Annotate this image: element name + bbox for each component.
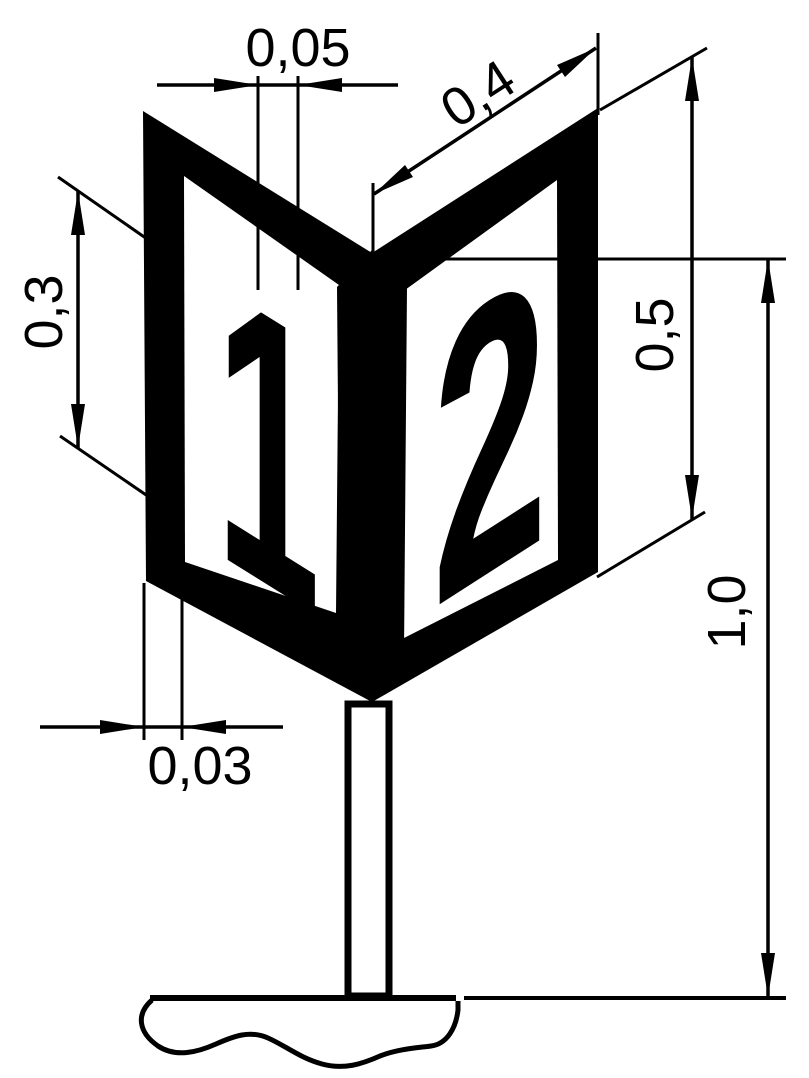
arrowhead [685,57,699,101]
dim-label-1-0: 1,0 [697,574,757,649]
dim-0-5: 0,5 [597,48,707,577]
technical-drawing: 1 2 0,05 0,4 0,3 0,5 [0,0,809,1078]
arrowhead [71,404,85,448]
arrowhead [100,720,144,734]
dim-label-0-4: 0,4 [430,48,526,139]
dim-label-0-3: 0,3 [14,274,74,349]
digit-1: 1 [216,200,320,701]
arrowhead [761,259,775,303]
arrowhead [685,475,699,519]
arrowhead [557,48,596,77]
arrowhead [214,78,258,92]
arrowhead [374,165,413,194]
extension-line [597,512,705,577]
post [348,704,389,996]
arrowhead [298,78,342,92]
dim-label-0-03: 0,03 [147,736,252,796]
arrowhead [71,191,85,235]
arrowhead [761,953,775,997]
dim-label-0-05: 0,05 [245,18,350,78]
sign-spine [337,250,407,703]
post-outline [348,704,389,996]
ground [141,998,786,1066]
dim-label-0-5: 0,5 [625,297,685,372]
dim-0-3: 0,3 [14,177,152,499]
arrowhead [182,720,226,734]
extension-line [60,436,152,499]
ground-blob [141,1000,458,1066]
